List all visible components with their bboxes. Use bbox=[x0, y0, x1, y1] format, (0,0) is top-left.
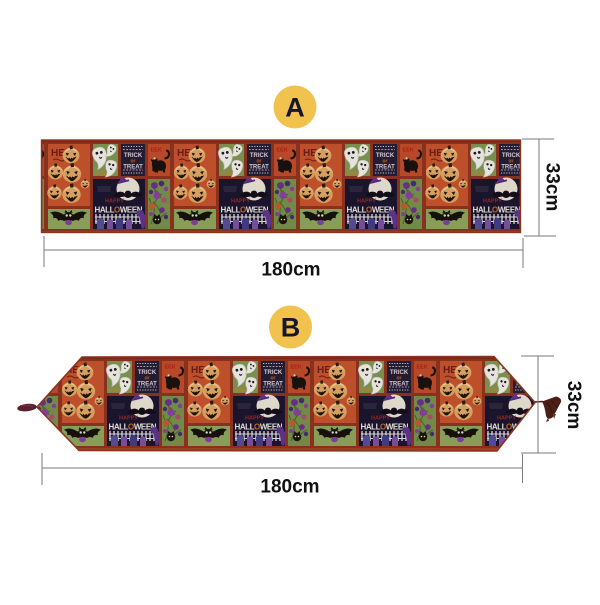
svg-text:180cm: 180cm bbox=[260, 477, 319, 498]
svg-text:33cm: 33cm bbox=[563, 381, 584, 430]
svg-text:33cm: 33cm bbox=[542, 163, 563, 212]
svg-text:A: A bbox=[285, 93, 305, 123]
svg-text:180cm: 180cm bbox=[261, 260, 320, 281]
svg-text:B: B bbox=[281, 313, 301, 343]
